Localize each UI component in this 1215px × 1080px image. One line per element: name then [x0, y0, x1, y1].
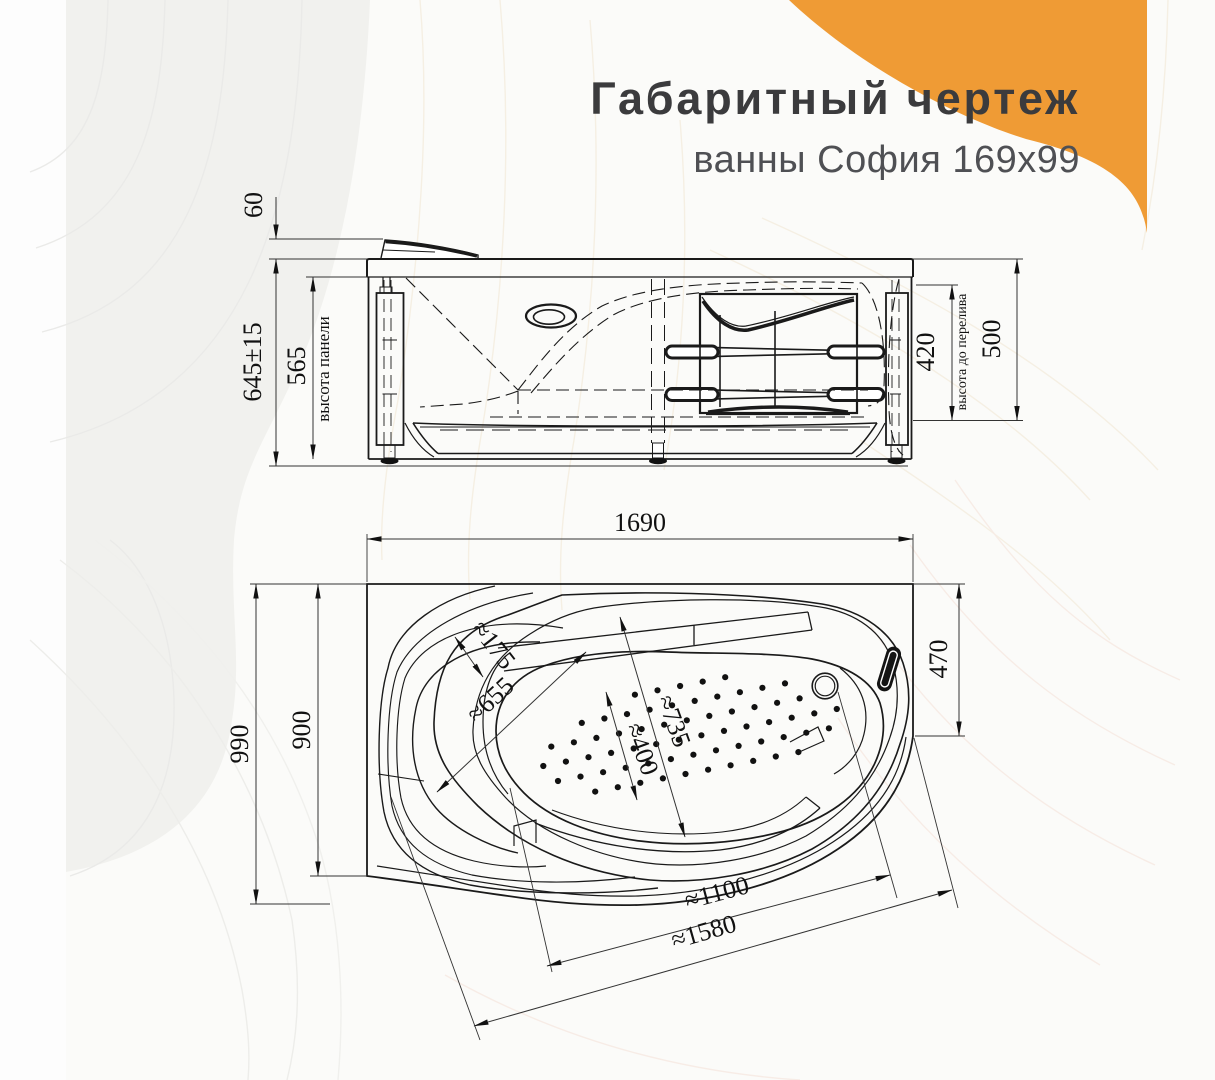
- svg-text:60: 60: [239, 192, 268, 218]
- svg-text:500: 500: [977, 320, 1006, 359]
- svg-text:ванны София 169х99: ванны София 169х99: [693, 139, 1080, 181]
- svg-text:высота до перелива: высота до перелива: [955, 293, 970, 410]
- svg-text:565: 565: [282, 347, 311, 386]
- svg-text:470: 470: [924, 640, 953, 679]
- svg-text:990: 990: [225, 725, 254, 764]
- svg-text:420: 420: [911, 333, 940, 372]
- svg-text:645±15: 645±15: [238, 322, 267, 401]
- svg-text:Габаритный чертеж: Габаритный чертеж: [590, 73, 1080, 124]
- svg-text:высота панели: высота панели: [314, 316, 333, 422]
- svg-text:1690: 1690: [614, 508, 666, 537]
- svg-text:900: 900: [287, 711, 316, 750]
